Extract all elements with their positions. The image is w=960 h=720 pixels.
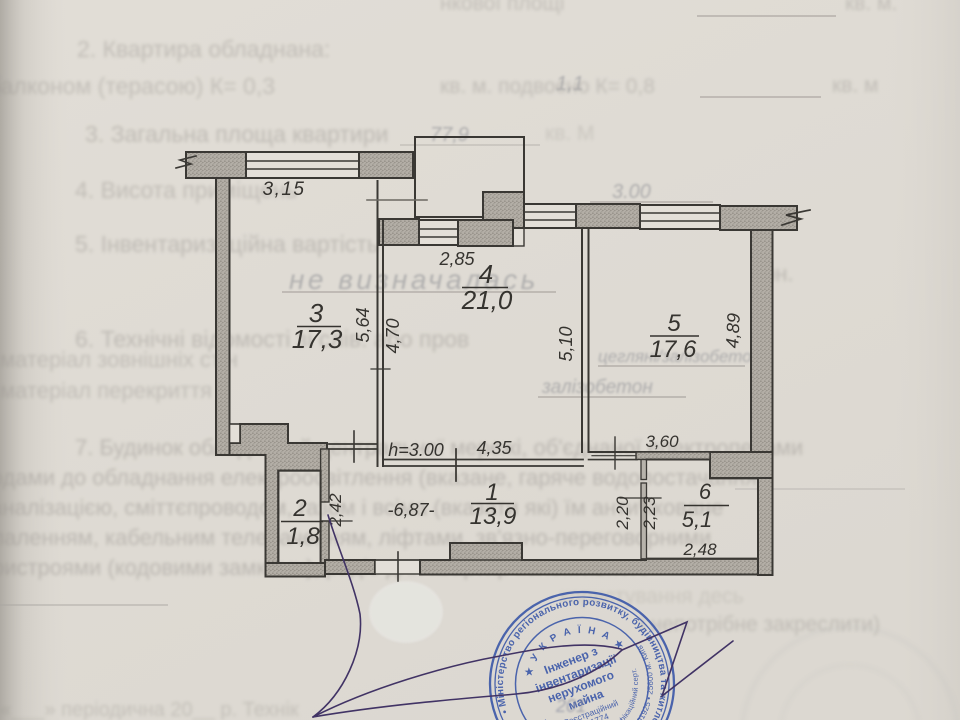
svg-text:2,42: 2,42: [326, 493, 345, 528]
svg-text:4,89: 4,89: [722, 313, 744, 349]
svg-text:нкової площі: нкової площі: [440, 0, 564, 15]
svg-text:5: 5: [667, 310, 681, 337]
svg-text:13,9: 13,9: [470, 503, 517, 530]
svg-text:2,23: 2,23: [640, 496, 659, 531]
svg-text:3,15: 3,15: [263, 179, 306, 200]
svg-text:кв. м.: кв. м.: [845, 0, 897, 15]
svg-text:ходами до обладнання електроо: ходами до обладнання електроосвітлення (…: [0, 465, 770, 490]
svg-text:1,1: 1,1: [556, 73, 584, 95]
svg-text:2. Квартира обладнана:: 2. Квартира обладнана:: [77, 36, 330, 62]
svg-text:1: 1: [485, 479, 498, 506]
svg-text:кв. м: кв. м: [832, 74, 878, 97]
svg-text:6: 6: [699, 479, 712, 504]
svg-text:опаленням, кабельним телебачен: опаленням, кабельним телебаченням, ліфта…: [0, 525, 711, 550]
svg-text:-6,87-: -6,87-: [387, 500, 434, 520]
svg-text:матеріал перекриття: матеріал перекриття: [0, 378, 212, 403]
svg-text:5,64: 5,64: [353, 307, 373, 342]
svg-text:4,70: 4,70: [383, 318, 403, 353]
svg-text:17,6: 17,6: [650, 336, 697, 363]
svg-text:балконом (терасою) К= 0,3: балконом (терасою) К= 0,3: [0, 73, 275, 99]
svg-text:77,9: 77,9: [430, 124, 469, 146]
svg-text:2,85: 2,85: [438, 249, 475, 269]
svg-text:4,35: 4,35: [476, 438, 512, 458]
svg-text:5,1: 5,1: [682, 507, 713, 532]
svg-text:і непотрібне закреслити): і непотрібне закреслити): [640, 613, 880, 636]
svg-text:залізобетон: залізобетон: [541, 377, 653, 398]
svg-text:1,8: 1,8: [286, 523, 320, 550]
svg-text:3,60: 3,60: [645, 432, 679, 451]
svg-text:3.00: 3.00: [612, 181, 651, 203]
svg-text:2,48: 2,48: [682, 540, 717, 559]
svg-text:201: 201: [555, 696, 586, 716]
svg-text:«___» періодична 20__ р. Техні: «___» періодична 20__ р. Технік: [0, 699, 299, 720]
svg-text:5,10: 5,10: [556, 326, 576, 361]
svg-text:матеріал зовнішніх стін: матеріал зовнішніх стін: [0, 347, 238, 372]
svg-text:кв. м. подвоєно К= 0,8: кв. м. подвоєно К= 0,8: [440, 75, 655, 98]
svg-text:3. Загальна площа квартири: 3. Загальна площа квартири: [85, 121, 388, 147]
svg-text:21,0: 21,0: [461, 285, 513, 315]
svg-text:17,3: 17,3: [292, 324, 343, 354]
svg-text:2: 2: [292, 495, 306, 522]
svg-text:2,20: 2,20: [613, 496, 632, 531]
svg-text:h=3.00: h=3.00: [388, 440, 444, 460]
svg-text:кв. М: кв. М: [545, 122, 595, 145]
